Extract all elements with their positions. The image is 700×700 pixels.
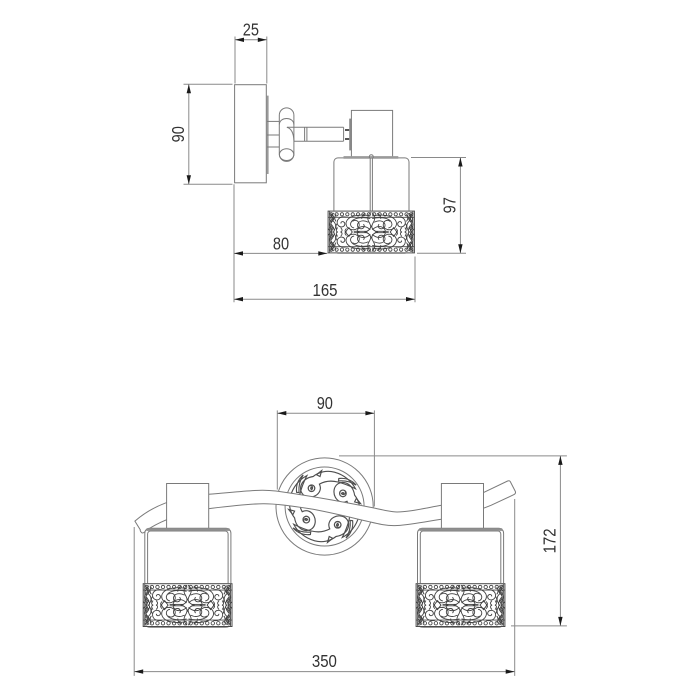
svg-text:25: 25	[243, 20, 259, 40]
svg-text:80: 80	[273, 233, 289, 253]
svg-text:90: 90	[317, 393, 333, 413]
svg-text:97: 97	[440, 197, 460, 213]
svg-text:90: 90	[168, 126, 188, 142]
svg-text:172: 172	[539, 528, 559, 553]
svg-text:165: 165	[313, 280, 338, 300]
svg-text:350: 350	[312, 651, 337, 671]
